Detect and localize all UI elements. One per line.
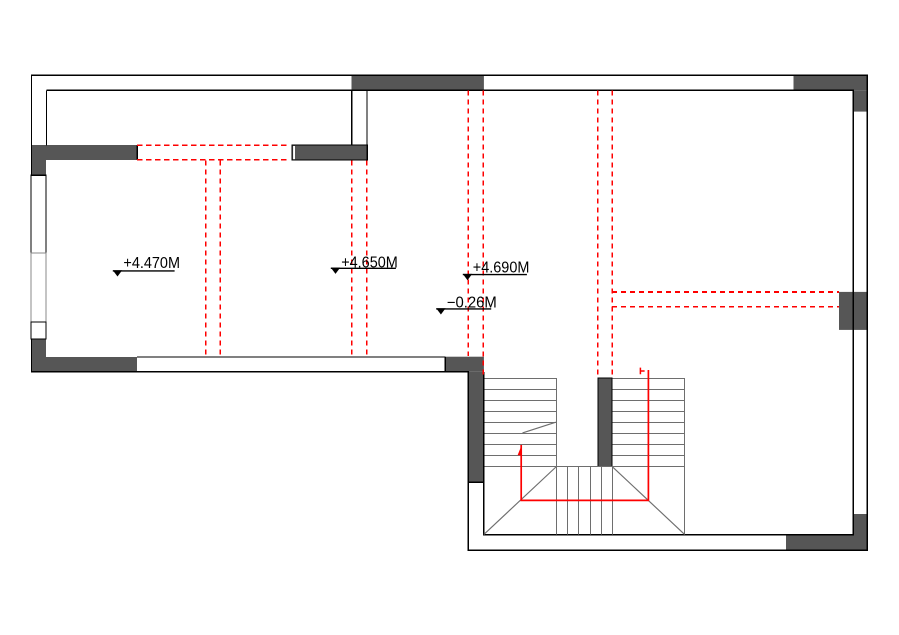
svg-text:−0.26M: −0.26M <box>447 295 497 312</box>
svg-text:+4.650M: +4.650M <box>341 254 398 271</box>
svg-text:+4.690M: +4.690M <box>473 259 530 276</box>
svg-text:+4.470M: +4.470M <box>123 255 180 272</box>
